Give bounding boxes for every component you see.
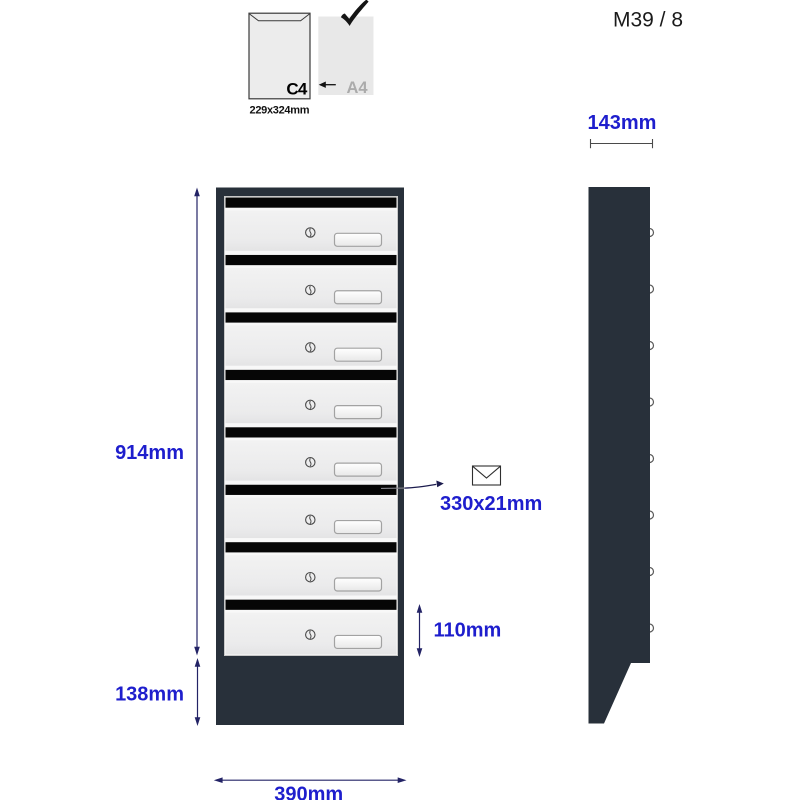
- svg-text:110mm: 110mm: [434, 620, 502, 642]
- svg-text:C4: C4: [286, 80, 307, 99]
- svg-text:330x21mm: 330x21mm: [440, 493, 542, 515]
- svg-text:390mm: 390mm: [274, 784, 343, 801]
- svg-text:143mm: 143mm: [588, 112, 657, 134]
- svg-text:A4: A4: [347, 79, 369, 97]
- svg-text:138mm: 138mm: [115, 684, 184, 706]
- svg-text:229x324mm: 229x324mm: [250, 105, 310, 117]
- svg-text:914mm: 914mm: [115, 442, 184, 464]
- svg-text:M39 / 8: M39 / 8: [613, 8, 683, 31]
